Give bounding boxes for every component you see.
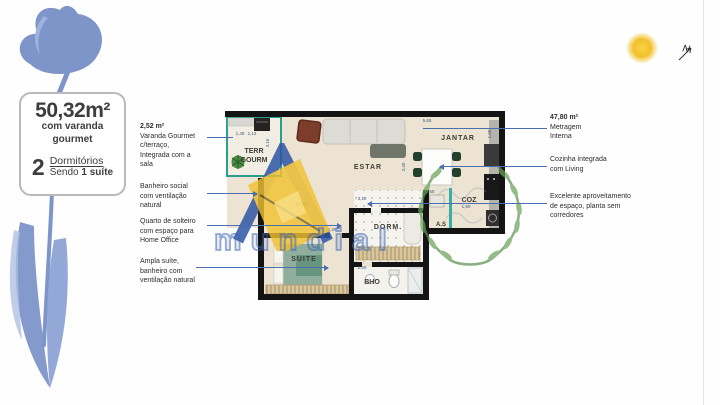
annotation-quarto-solteiro: Quarto de solteiro com espaço para Home … xyxy=(140,217,210,246)
dim-t2: 1,13 xyxy=(248,131,257,136)
area-info-card: 50,32m² com varanda gourmet 2 Dormitório… xyxy=(19,92,126,196)
sofa xyxy=(323,119,405,144)
terrace-counter xyxy=(228,118,255,126)
bedroom-count-row: 2 Dormitórios Sendo 1 suíte xyxy=(32,155,113,179)
flower-illustration-icon xyxy=(0,0,150,400)
leader-banheiro-social xyxy=(207,193,257,194)
dim-dorm: 3,10 xyxy=(358,196,367,201)
pillow xyxy=(274,266,283,283)
edge-divider xyxy=(703,0,704,405)
leader-quarto-solteiro xyxy=(207,225,341,226)
annotation-banheiro-social: Banheiro social com ventilação natural xyxy=(140,182,210,211)
toilet xyxy=(389,275,399,288)
bedroom-count: 2 xyxy=(32,156,45,178)
dim-estar: 2,40 xyxy=(401,162,406,171)
area-caption-line1: com varanda xyxy=(42,121,104,133)
dim-right: 1,60 xyxy=(487,129,492,138)
leader-varanda xyxy=(207,137,233,138)
annotation-metragem: 47,80 m² Metragem Interna xyxy=(550,113,665,142)
room-label-estar: ESTAR xyxy=(354,164,382,171)
suite-note: Sendo 1 suíte xyxy=(50,167,113,179)
annotation-aproveitamento: Excelente aproveitamento de espaço, plan… xyxy=(550,192,665,221)
suite-wardrobe xyxy=(266,285,349,294)
listing-image: N 50,32m² com varanda gourmet 2 Dormitór… xyxy=(0,0,720,405)
area-caption-line2: gourmet xyxy=(53,133,93,146)
grill xyxy=(254,118,270,131)
total-area-value: 50,32m² xyxy=(35,100,110,121)
dim-top: 5,65 xyxy=(423,118,432,123)
chaise xyxy=(370,144,406,158)
dim-bho: 2,50 xyxy=(358,265,367,270)
signature-squiggle xyxy=(438,188,486,223)
leader-cozinha xyxy=(440,166,547,167)
leader-metragem xyxy=(423,128,547,129)
annotation-varanda: 2,52 m² Varanda Gourmet c/terraço, Integ… xyxy=(140,122,210,170)
bedroom-label: Dormitórios xyxy=(50,155,104,167)
compass-north-icon: N xyxy=(675,40,697,64)
annotation-suite: Ampla suíte, banheiro com ventilação nat… xyxy=(140,257,210,286)
leader-aproveitamento xyxy=(368,203,547,204)
laurel-wreath-watermark-icon xyxy=(410,158,530,270)
leader-suite xyxy=(196,267,328,268)
annotation-cozinha: Cozinha integrada com Living xyxy=(550,155,665,174)
sun-icon xyxy=(626,33,658,63)
room-label-bho: BHO xyxy=(364,279,380,286)
room-label-jantar: JANTAR xyxy=(441,135,475,142)
dim-t1: 1,48 xyxy=(236,131,245,136)
armchair xyxy=(297,120,321,144)
